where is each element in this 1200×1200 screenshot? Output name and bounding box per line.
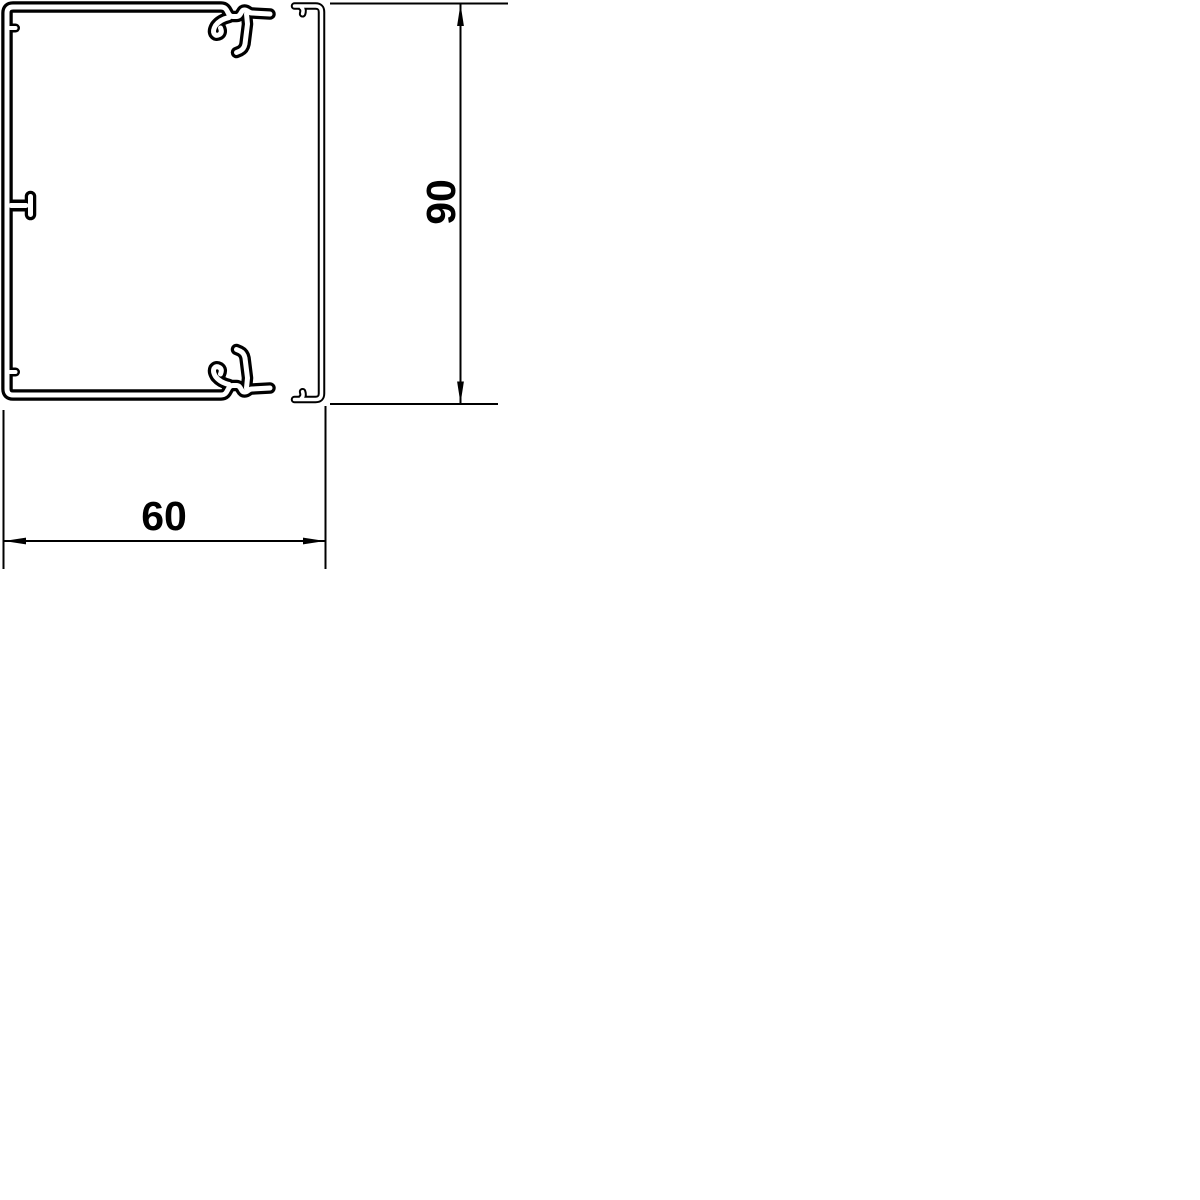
height-dimension-label: 90 (418, 179, 464, 225)
technical-drawing: 60 90 (0, 0, 1200, 1200)
width-dimension: 60 (4, 406, 326, 569)
cover-profile (295, 6, 322, 400)
width-dimension-label: 60 (141, 493, 187, 539)
base-profile-core (7, 7, 270, 395)
height-arrow-up-icon (457, 4, 464, 26)
height-dimension: 90 (330, 4, 508, 405)
width-arrow-left-icon (4, 538, 26, 545)
base-wall-outline (7, 7, 270, 395)
base-profile-outline (7, 7, 270, 395)
drawing-canvas: 60 90 (0, 0, 1200, 1200)
width-arrow-right-icon (303, 538, 325, 545)
height-arrow-down-icon (457, 382, 464, 404)
trunking-base-profile (7, 7, 270, 395)
cover-wall-outline (295, 6, 322, 400)
cover-profile-outline (295, 6, 322, 400)
cover-profile-core (295, 6, 322, 400)
